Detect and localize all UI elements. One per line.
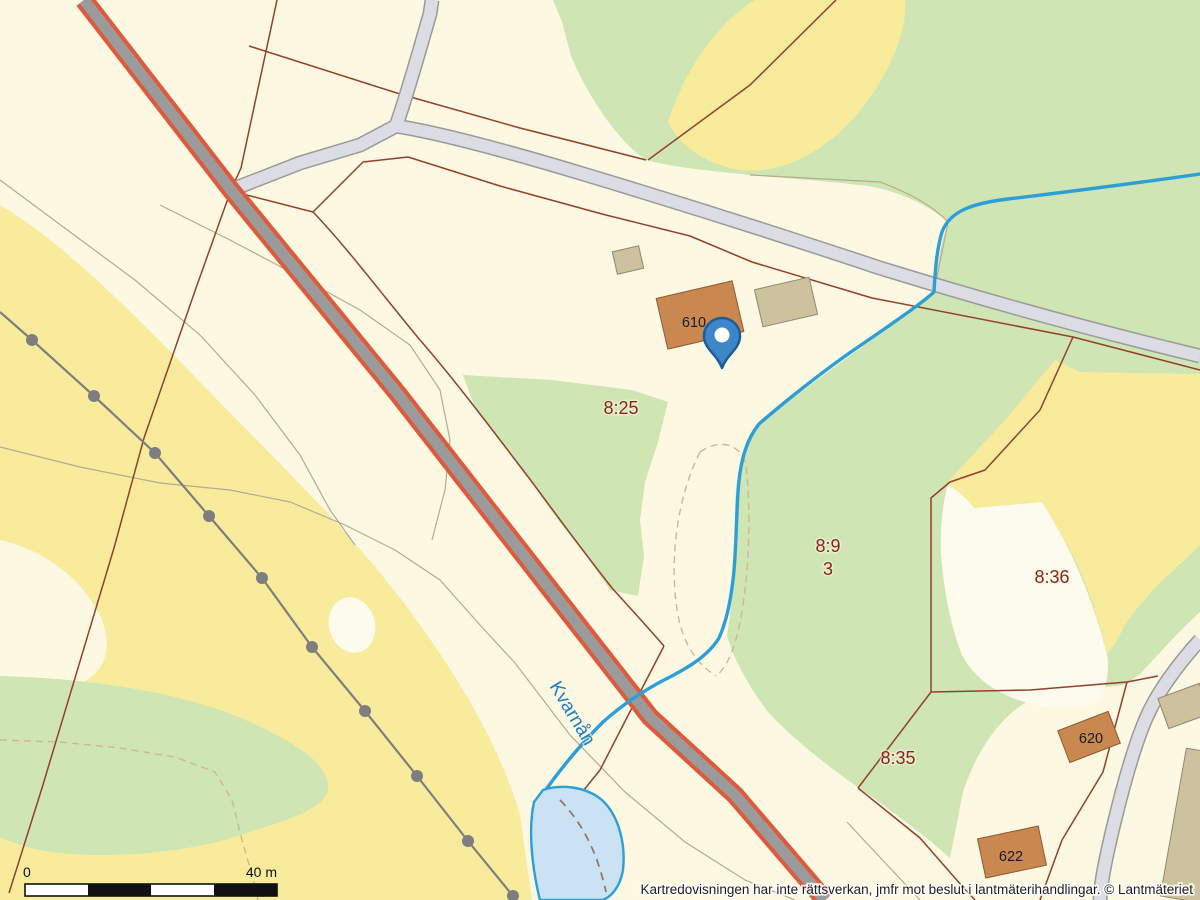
powerline-pole — [88, 390, 100, 402]
powerline-pole — [462, 835, 474, 847]
parcel-label-825: 8:25 — [603, 398, 638, 418]
powerline-pole — [306, 641, 318, 653]
building-label-622: 622 — [999, 849, 1023, 865]
building-label-610: 610 — [682, 315, 706, 331]
map-canvas[interactable]: 8:25 8:9 3 8:36 8:35 610 620 622 Kvarnån… — [0, 0, 1200, 900]
scale-end-label: 40 m — [246, 864, 277, 880]
powerline-pole — [256, 572, 268, 584]
attribution-text: Kartredovisningen har inte rättsverkan, … — [641, 882, 1194, 897]
powerline-pole — [26, 334, 38, 346]
scale-start-label: 0 — [23, 864, 31, 880]
parcel-label-836: 8:36 — [1034, 567, 1069, 587]
powerline-pole — [359, 705, 371, 717]
powerline-pole — [203, 510, 215, 522]
parcel-label-835: 8:35 — [880, 748, 915, 768]
powerline-pole — [411, 770, 423, 782]
map-viewport[interactable]: 8:25 8:9 3 8:36 8:35 610 620 622 Kvarnån… — [0, 0, 1200, 900]
powerline-pole — [149, 447, 161, 459]
building-label-620: 620 — [1079, 731, 1103, 747]
parcel-label-89: 8:9 — [815, 536, 840, 556]
parcel-label-89-sub: 3 — [823, 559, 833, 579]
pin-hole — [715, 328, 730, 343]
